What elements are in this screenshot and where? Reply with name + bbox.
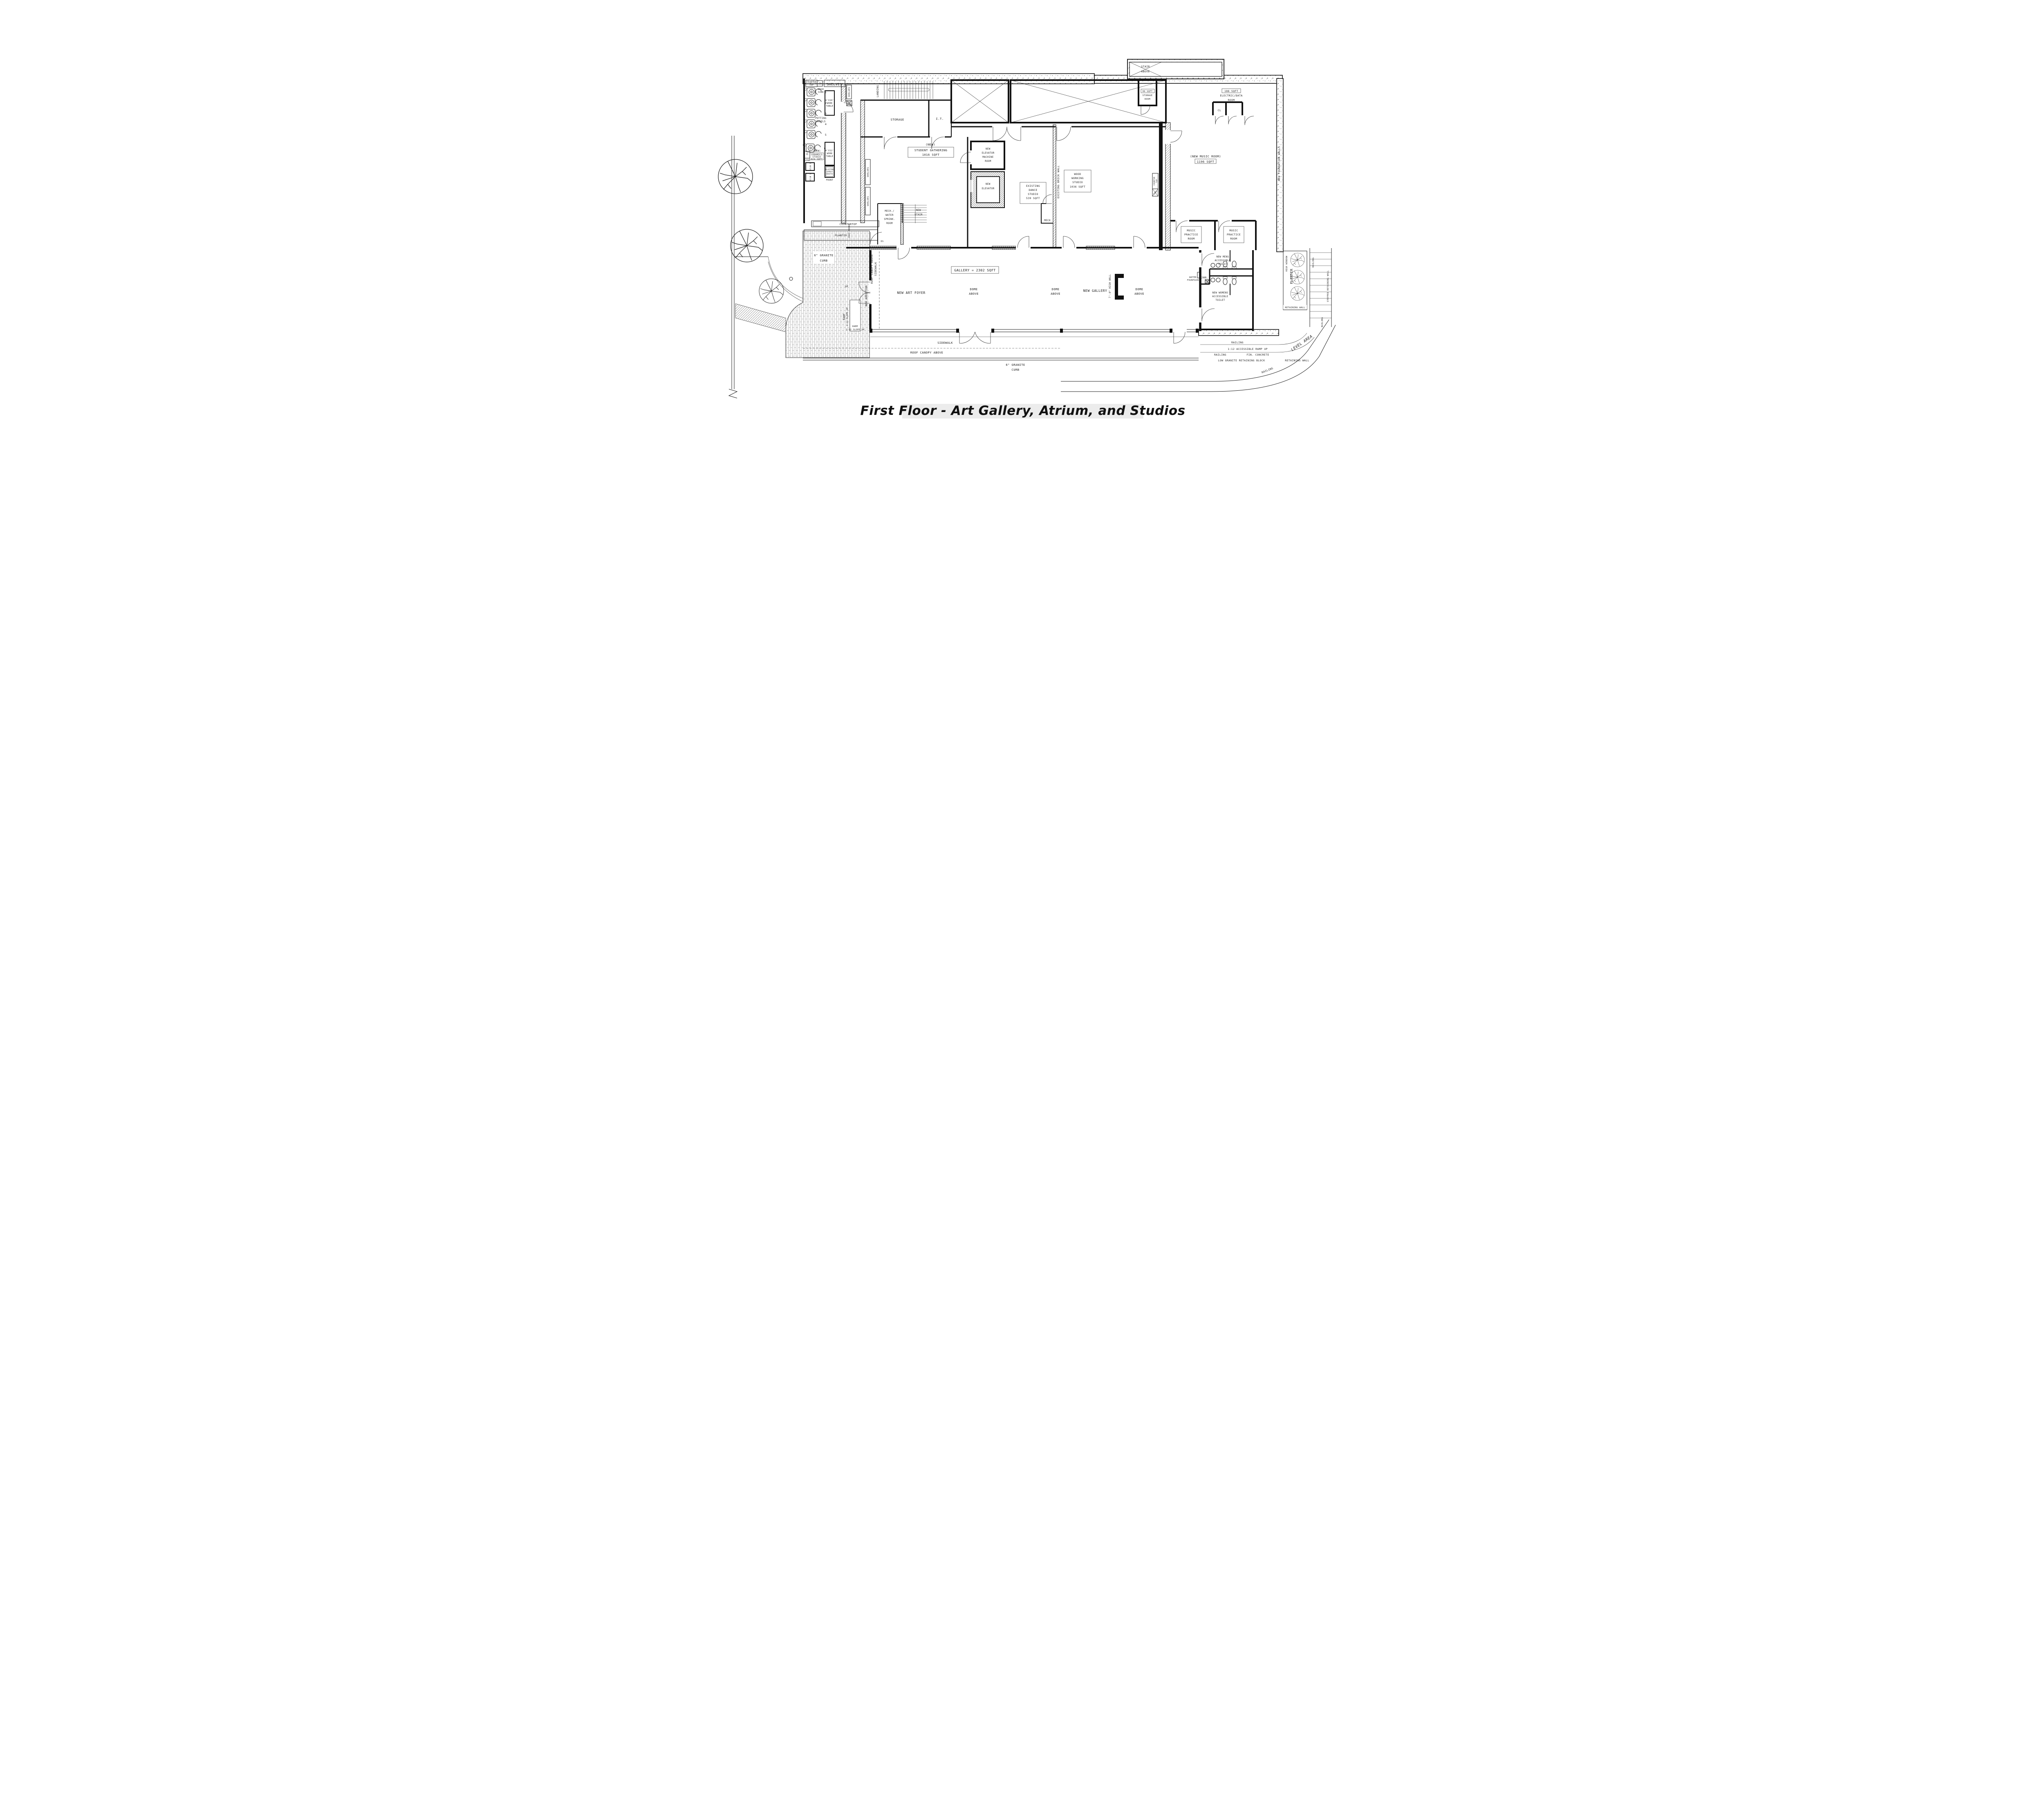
hatched-walkway: [735, 304, 786, 332]
mens-label: NEW MENS: [1216, 256, 1229, 258]
wood-east-wall: [1159, 123, 1163, 250]
stepped-retaining-label: STEPPED RETAINING WALL: [1327, 270, 1329, 302]
wall-infill: [992, 246, 1016, 250]
sink-drain-icon: [807, 153, 808, 155]
site-right: HIGH WINDOW PLANTER RETAINING WALL RAILI…: [1283, 248, 1331, 352]
canopy-sidewalk-label2: SIDEWALK: [874, 262, 877, 276]
tree-icon: [718, 159, 753, 194]
mech-water-label3: SPRINK.: [884, 218, 895, 221]
glazing-label: GLAZING: [825, 168, 834, 171]
granite-curb-left-label2: CURB: [820, 259, 828, 262]
floor-plan-drawing: 6" GRANITE CURB NEW ADDITION RAMP 1:12 S…: [706, 0, 1338, 421]
practice1-label: MUSIC: [1187, 229, 1195, 232]
granite-curb-lines: [803, 358, 1199, 360]
granite-curb-bottom-label2: CURB: [1012, 368, 1020, 372]
ceramics-label3: 824 SQFT: [811, 158, 823, 161]
mens-label2: ACCESSIBLE: [1215, 260, 1231, 262]
kiln2-label: KILN 2: [809, 163, 812, 170]
road-curve-1: [1061, 320, 1329, 381]
mech-water-label4: ROOM: [886, 222, 893, 225]
wood-label4: 1036 SQFT: [1070, 185, 1085, 188]
granite-curb-left-label: 6" GRANITE: [814, 253, 833, 257]
shelves-top-label: SHELVES: [827, 82, 842, 86]
railing-label-h: RAILING: [1231, 341, 1244, 344]
mech-label: MECH: [1044, 219, 1051, 222]
counter-top-label2: TOP: [809, 84, 814, 87]
elevator-door-opening: [970, 180, 973, 192]
door-opening: [1056, 125, 1071, 129]
wall-infill: [917, 246, 950, 250]
tree-icon: [759, 279, 784, 303]
dome-above-label: DOME: [1052, 287, 1060, 291]
gathering-west-wall: [861, 100, 865, 223]
music-room: (NEW MUSIC ROOM) 1196 SQFT MUSIC PRACTIC…: [1170, 155, 1256, 250]
elevator-label: NEW: [986, 183, 991, 186]
door-opening: [969, 150, 973, 164]
ceramics-studio: COUNTER TOP WASH SINK SHELVES 1 2 3 4 5 …: [803, 80, 883, 244]
mop-sink-label: MOP: [847, 101, 851, 103]
up-label: UP: [845, 286, 848, 288]
door-arcs: [1215, 116, 1254, 125]
site-bottom: ROOF CANOPY ABOVE SIDEWALK SIDEWALK ROOF…: [803, 251, 1336, 392]
elevator-core: NEW ELEVATOR MACHINE ROOM NEW ELEVATOR: [960, 141, 1004, 208]
dance-studio: EXISTING DANCE STUDIO 539 SQFT EXISTING …: [1020, 125, 1060, 248]
table412-label: 4'X12': [825, 150, 834, 152]
mech-water-label: MECH./: [885, 210, 894, 213]
door-arc: [1170, 131, 1182, 142]
machine-room-label: NEW: [986, 148, 991, 150]
mop-sink-label2: SINK: [1205, 282, 1210, 284]
student-gathering: SHELVES SHELVES (NEW) STUDENT GATHERING …: [865, 137, 968, 248]
counter-v-label: COUNTER: [1153, 177, 1156, 185]
dance-label2: DANCE: [1029, 188, 1037, 192]
shelves-v-label: SHELVES: [867, 196, 870, 206]
roof-canopy-label: ROOF CANOPY ABOVE: [910, 351, 943, 354]
stair-wall: [901, 204, 903, 244]
potting-wheel: [804, 109, 821, 117]
jamb: [1196, 329, 1199, 333]
mop-sink-label2: SINK: [847, 103, 852, 106]
jan-label: JAN.: [1201, 276, 1208, 279]
site-left: [718, 136, 803, 398]
existing-brick-wall-label: EXISTING BRICK WALL: [1057, 166, 1060, 199]
gathering-label2: 1016 SQFT: [922, 153, 940, 157]
new-stair-label: NEW: [916, 209, 921, 212]
wheel-number: 4: [825, 123, 827, 126]
dome-above-label2: ABOVE: [1134, 292, 1144, 296]
cl-label: CL: [1218, 109, 1221, 112]
kiln1-label: KILN 1: [809, 173, 812, 181]
granite-curb-bottom-label: 6" GRANITE: [1006, 363, 1025, 367]
music-practice-room-1: MUSIC PRACTICE ROOM: [1181, 226, 1201, 243]
retaining-wall-bottom-label: RETAINING WALL: [1285, 359, 1309, 362]
sink-label: SINK: [805, 159, 811, 162]
table412-label2: WORK: [827, 152, 833, 155]
shelves-v-label: SHELVES: [867, 167, 870, 177]
electric-label: 186 SQFT: [1224, 90, 1238, 93]
potting-wheel: [804, 99, 821, 107]
coat-hooks-label: COAT HOOKS: [848, 224, 851, 238]
dome-above-label2: ABOVE: [1051, 292, 1060, 296]
music-practice-room-2: MUSIC PRACTICE ROOM: [1224, 226, 1244, 243]
storage-label: STORAGE: [890, 118, 904, 121]
brick-plaza: 6" GRANITE CURB NEW ADDITION RAMP 1:12 S…: [786, 231, 870, 358]
new-gallery-label: NEW GALLERY: [1083, 289, 1107, 293]
railing-label-v: RAILING: [1312, 258, 1315, 268]
shelves-v-label: SHELVES: [848, 87, 851, 97]
table410-label: 4'X10': [825, 99, 834, 102]
door-opening: [1172, 328, 1187, 333]
water-fountain-label2: FOUNTAIN: [1187, 279, 1199, 282]
stair-above-box: STAIR ABOVE: [1127, 59, 1224, 79]
jamb: [870, 329, 872, 333]
storage99-label2: STORAGE: [1143, 94, 1153, 97]
door-opening: [1062, 246, 1076, 250]
womens-label3: TOILET: [1215, 299, 1225, 302]
door-arc: [1057, 127, 1071, 141]
brick-paving: [786, 231, 870, 358]
stair-above-label2: ABOVE: [1141, 70, 1150, 73]
door-opening: [1165, 130, 1171, 144]
atrium-double-door: [993, 127, 1021, 141]
wood-label3: STUDIO: [1072, 181, 1083, 184]
accessible-ramp-label: 1:12 ACCESSIBLE RAMP UP: [1228, 347, 1268, 351]
door-arc: [870, 232, 882, 244]
table412-label3: TABLE: [826, 155, 834, 158]
ds-label: DS: [881, 240, 883, 243]
canopy-sidewalk-label: ROOF CANOPY ABOVE: [870, 254, 874, 284]
tree-icon: [731, 229, 763, 262]
music-sqft-label: 1196 SQFT: [1197, 160, 1215, 163]
mech-water-label2: WATER: [885, 214, 894, 217]
north-east-rooms: 99 SQFT STORAGE ROOM 186 SQFT ELECTRIC/D…: [1139, 80, 1254, 125]
machine-room-label4: ROOM: [985, 160, 991, 163]
planter-south-label: PLANTER: [835, 234, 847, 237]
counter-sink-label: SINK: [1153, 190, 1158, 195]
dance-label3: STUDIO: [1028, 193, 1038, 196]
music-room-label: (NEW MUSIC ROOM): [1190, 155, 1221, 158]
potting-wheels-label2: WHEELS: [816, 121, 825, 123]
storage99-label: 99 SQFT: [1143, 90, 1153, 93]
door-opening: [841, 102, 846, 113]
landing-label: LANDING: [876, 85, 879, 97]
mens-door-arc: [1202, 253, 1214, 266]
practice1-label2: PRACTICE: [1184, 233, 1198, 236]
countertop-label: COUNTERTOP: [840, 223, 857, 226]
door-arc: [1141, 105, 1150, 114]
ramp-slope-label-v: 1:12 SLOPE UP: [846, 307, 849, 326]
tree-icon: [1291, 287, 1304, 300]
machine-room-label3: MACHINE: [982, 156, 993, 159]
building-walls: NEW FOUNDATION WALLS NEW FOUNDATION WALL…: [803, 74, 1283, 336]
door-opening: [1132, 246, 1147, 250]
table410-label2: WORK: [827, 102, 833, 105]
jamb: [991, 329, 994, 333]
jamb: [956, 329, 959, 333]
it-label: I.T.: [936, 117, 944, 121]
wheel-number: 5: [825, 133, 827, 137]
counter-v-label2: TOP: [1156, 179, 1158, 183]
low-granite-label: LOW GRANITE RETAINING BLOCK: [1218, 359, 1265, 362]
table410-label3: TABLE: [826, 105, 834, 107]
wall-infill: [1086, 246, 1115, 250]
retaining-wall-label: RETAINING WALL: [1285, 307, 1305, 309]
new-foundation-walls-right-label: NEW FOUNDATION WALLS: [1277, 146, 1281, 181]
storage99-label3: ROOM: [1145, 98, 1150, 101]
countertop-sink: [813, 222, 821, 226]
door-arc: [1043, 195, 1052, 204]
tree-icon: [1291, 253, 1304, 267]
street-break-symbol: [729, 389, 737, 398]
wood-working-studio: WOOD WORKING STUDIO 1036 SQFT COUNTER TO…: [1064, 123, 1182, 250]
practice2-label: MUSIC: [1229, 229, 1238, 232]
front-label: FRONT: [826, 179, 834, 181]
dome-above-label2: ABOVE: [969, 292, 979, 296]
gathering-label: STUDENT GATHERING: [914, 148, 947, 152]
wood-label2: WORKING: [1071, 177, 1084, 180]
dance-label4: 539 SQFT: [1026, 197, 1040, 200]
jamb: [1170, 329, 1172, 333]
door-opening: [1016, 246, 1031, 250]
floor-plan-sheet: 6" GRANITE CURB NEW ADDITION RAMP 1:12 S…: [706, 0, 1338, 421]
womens-door-arc: [1202, 309, 1215, 321]
toilets: NEW MENS ACCESSIBLE TOILET JAN. MOP SINK…: [1187, 250, 1253, 331]
railing-label-h2: RAILING: [1214, 353, 1226, 356]
gallery-sqft-label: GALLERY = 2302 SQFT: [954, 268, 995, 272]
high-window-label: HIGH WINDOW: [1286, 255, 1288, 271]
water-fountain-label: WATER: [1189, 276, 1197, 279]
title-block: First Floor - Art Gallery, Atrium, and S…: [860, 403, 1185, 419]
practice2-label2: PRACTICE: [1227, 233, 1241, 236]
womens-label2: ACCESSIBLE: [1213, 296, 1228, 298]
dome-above-label: DOME: [970, 287, 978, 291]
sidewalk-label: SIDEWALK: [937, 341, 953, 345]
stair-above-label: STAIR: [1141, 65, 1150, 68]
bollard-icon: [789, 277, 793, 280]
electric-label2: ELECTRIC/DATA: [1220, 94, 1242, 97]
wall-infill: [870, 246, 896, 250]
ramp-label-v: RAMP: [843, 314, 846, 320]
dance-label: EXISTING: [1026, 184, 1040, 188]
electric-label3: ROOM: [1228, 99, 1235, 102]
south-foundation-wall: [1199, 329, 1279, 336]
existing-brick-wall: [1053, 125, 1056, 248]
wash-sink-label2: SINK: [818, 91, 824, 94]
north-foundation-wall: [803, 74, 1094, 84]
curved-curb-edge: [768, 257, 803, 302]
practice1-label3: ROOM: [1188, 237, 1195, 240]
railing-label-v2: RAILING: [1321, 317, 1324, 327]
jamb: [1060, 329, 1063, 333]
railing-curved-label: RAILING: [1261, 367, 1274, 374]
ramp-slope-label-h: 1:12 SLOPE UP: [846, 329, 865, 331]
gathering-new-tag: (NEW): [926, 143, 935, 146]
ceramics-new-tag: (NEW): [813, 150, 820, 152]
counter-top-label: COUNTER: [807, 81, 817, 84]
storefront-lines: [870, 329, 1199, 332]
new-stair-label2: STAIR: [914, 214, 923, 216]
potting-wheel: [804, 130, 821, 139]
planter-right-label: PLANTER: [1289, 269, 1293, 284]
womens-label: NEW WOMENS: [1213, 292, 1228, 294]
atrium-skylights: [951, 80, 1166, 141]
new-art-foyer-label: NEW ART FOYER: [897, 291, 925, 295]
ramp-label-h: RAMP: [852, 325, 858, 328]
level-area-label: LEVEL AREA: [1290, 334, 1313, 352]
glazing-label2: SPRAY: [827, 171, 833, 173]
fin-concrete-label: FIN. CONCRETE: [1246, 353, 1269, 356]
entry-double-door: [959, 332, 991, 343]
wood-label: WOOD: [1074, 172, 1081, 176]
practice2-label3: ROOM: [1230, 237, 1237, 240]
potting-wheels-label: POTTING: [815, 117, 826, 120]
elevator-label2: ELEVATOR: [982, 188, 994, 190]
door-opening: [896, 246, 911, 250]
high-wall-label: 7'-0" HIGH WALL: [1109, 274, 1112, 298]
gallery: UP GALLERY = 2302 SQFT NEW ART FOYER DOM…: [845, 236, 1199, 329]
dome-above-label: DOME: [1136, 287, 1143, 291]
glazing-label3: BOOTH: [827, 173, 833, 175]
door-arc: [1174, 332, 1185, 343]
machine-room-label2: ELEVATOR: [982, 152, 994, 155]
seven-foot-high-wall: [1115, 274, 1124, 300]
sheet-title: First Floor - Art Gallery, Atrium, and S…: [860, 403, 1185, 418]
